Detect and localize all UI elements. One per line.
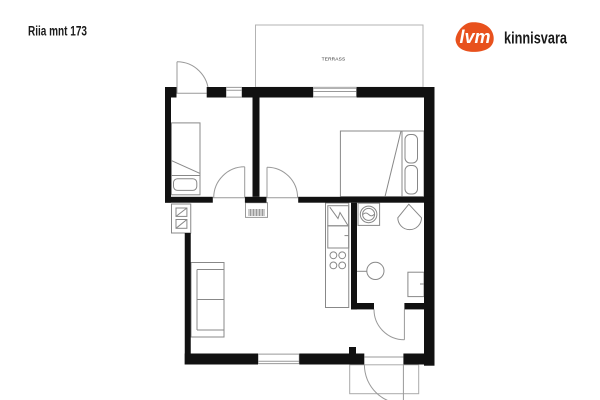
svg-text:TERRASS: TERRASS	[322, 57, 346, 63]
svg-text:lvm: lvm	[459, 27, 490, 47]
svg-text:kinnisvara: kinnisvara	[504, 30, 568, 48]
svg-text:Riia mnt 173: Riia mnt 173	[28, 24, 87, 39]
